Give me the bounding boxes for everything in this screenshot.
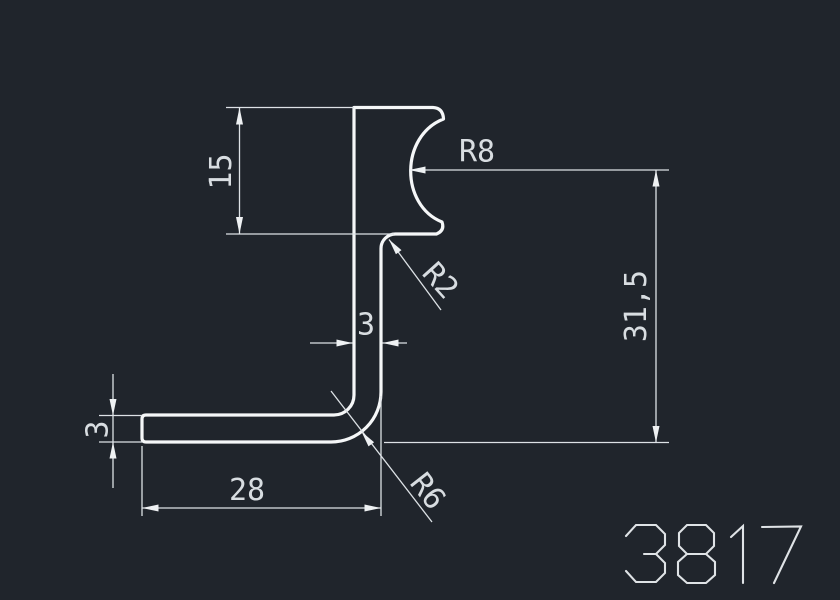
dimension-value: R8: [459, 135, 495, 170]
dimension-value: 3: [81, 420, 116, 438]
digit-8-glyph: [678, 525, 715, 583]
cad-drawing-canvas: 15 R8 R2 3 31,5: [0, 0, 840, 600]
arrowhead-left-icon: [383, 340, 399, 347]
dimension-value: R2: [415, 256, 465, 306]
dimension-notch-height: 15: [204, 108, 394, 235]
arrowhead-left-icon: [142, 505, 159, 512]
dimension-value: 31,5: [619, 270, 654, 342]
dimension-value: 3: [357, 308, 375, 343]
digit-1-glyph: [731, 526, 743, 583]
arrowhead-right-icon: [365, 505, 382, 512]
profile-outline: [142, 108, 444, 443]
dimension-value: 15: [204, 153, 239, 189]
arrowhead-down-icon: [110, 399, 117, 416]
arrowhead-upleft-icon: [389, 240, 402, 255]
dimension-stem-width: 3: [310, 308, 407, 347]
dimension-leg-thickness: 3: [81, 374, 143, 488]
arrowhead-right-icon: [337, 340, 353, 347]
arrowhead-up-icon: [236, 108, 243, 125]
arrowhead-up-icon: [110, 442, 117, 459]
dimension-value: 28: [229, 473, 265, 508]
arrowhead-down-icon: [236, 217, 243, 234]
part-number-glyphs: 3817: [626, 520, 801, 588]
arrowhead-up-icon: [653, 170, 660, 187]
dimension-step-radius: R2: [389, 240, 465, 311]
dimension-value: R6: [403, 466, 453, 516]
dimension-notch-radius: R8: [409, 135, 669, 174]
arrowhead-down-icon: [653, 426, 660, 443]
dimension-corner-radius: R6: [331, 391, 452, 522]
profile-drawing: 15 R8 R2 3 31,5: [0, 0, 840, 600]
digit-3-glyph: [626, 525, 665, 582]
digit-7-glyph: [762, 527, 801, 584]
